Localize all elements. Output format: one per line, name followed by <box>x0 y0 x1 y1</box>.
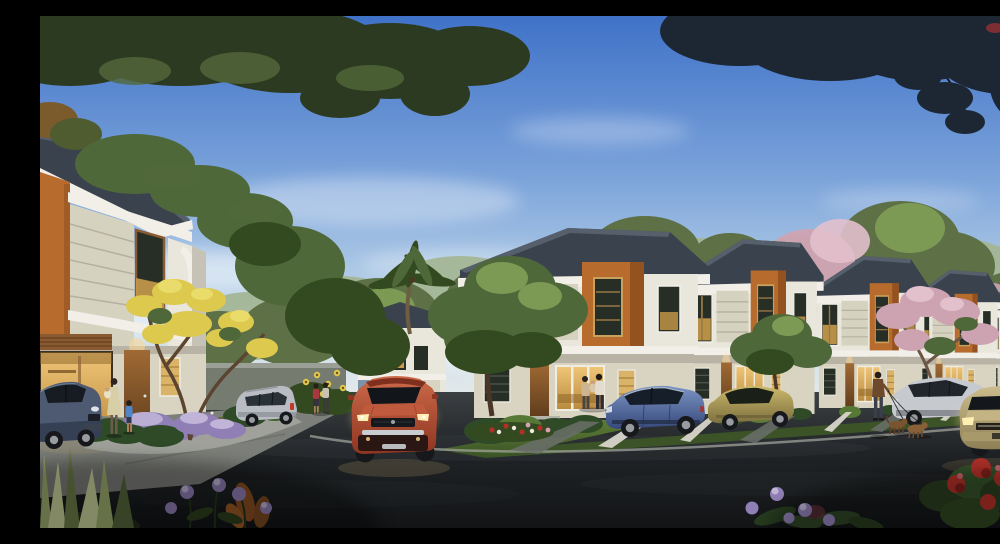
windshield <box>367 387 421 404</box>
headlight <box>962 417 974 425</box>
headlight <box>91 406 99 411</box>
taillight <box>290 403 294 410</box>
flower-bed-unit1 <box>466 422 554 442</box>
scene-svg <box>40 16 1000 528</box>
dark-suv <box>40 382 102 449</box>
rendering-canvas: Dusk architectural rendering of a modern… <box>40 16 1000 528</box>
